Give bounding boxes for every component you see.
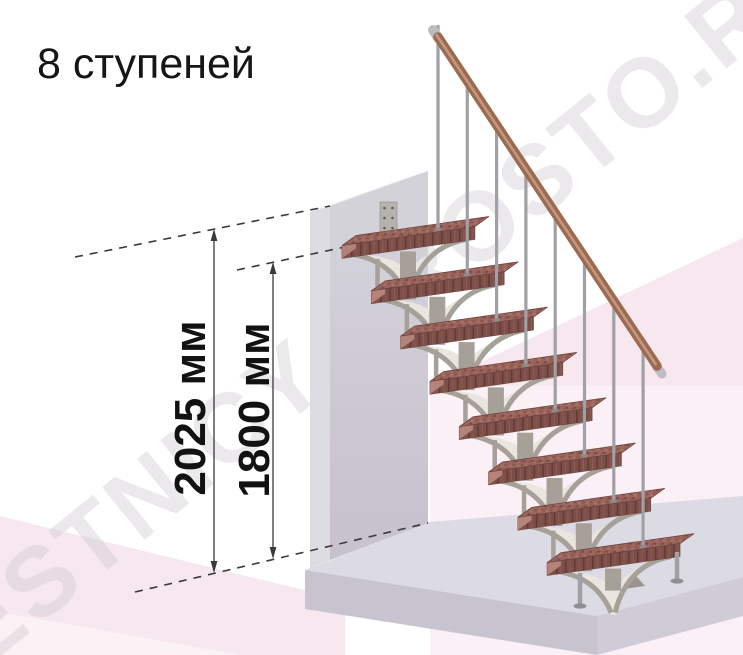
- dimension-label-1800: 1800 мм: [230, 322, 279, 497]
- inter-step-post: [551, 531, 556, 559]
- right-leg-flange: [671, 578, 684, 583]
- inter-step-post: [434, 349, 439, 377]
- dimension-label-2025: 2025 мм: [166, 320, 215, 495]
- baluster-base: [434, 228, 441, 231]
- scene-canvas: LESTNICY-PROSTO.RU: [0, 0, 743, 655]
- stringer-post: [605, 569, 621, 591]
- baluster-base: [581, 454, 588, 457]
- inter-step-post: [463, 395, 468, 423]
- baluster-base: [522, 364, 529, 367]
- baluster-base: [640, 545, 647, 548]
- baluster-base: [464, 273, 471, 276]
- page-title: 8 ступеней: [37, 40, 255, 88]
- staircase-illustration: LESTNICY-PROSTO.RU: [0, 0, 743, 655]
- front-leg-flange: [574, 603, 587, 608]
- inter-step-post: [493, 440, 498, 468]
- wall-left-face: [310, 206, 330, 568]
- inter-step-post: [375, 259, 380, 287]
- inter-step-post: [522, 485, 527, 513]
- inter-step-post: [405, 304, 410, 332]
- baluster-base: [610, 500, 617, 503]
- baluster-base: [552, 409, 559, 412]
- baluster-base: [493, 318, 500, 321]
